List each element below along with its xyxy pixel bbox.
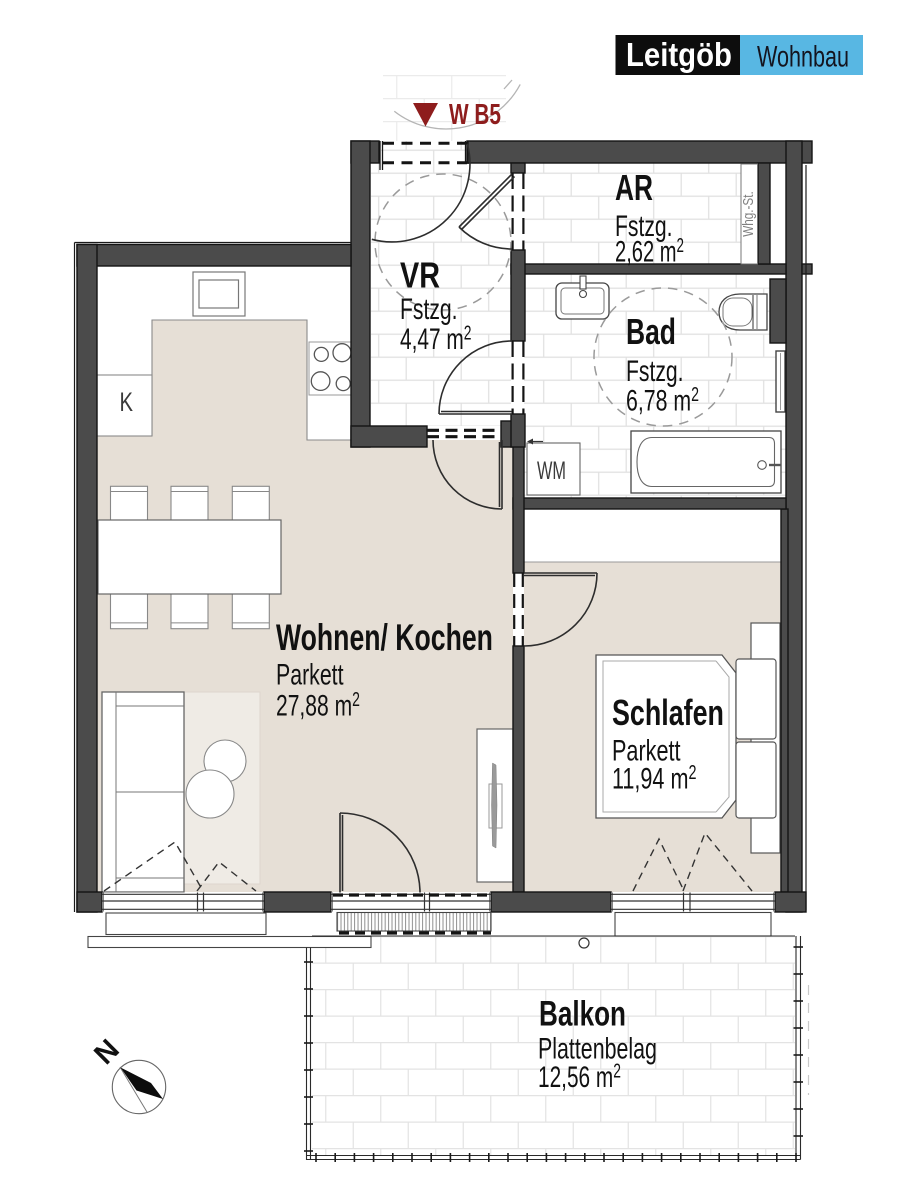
- svg-text:12,56 m2: 12,56 m2: [538, 1059, 621, 1094]
- svg-text:6,78 m2: 6,78 m2: [626, 383, 699, 418]
- svg-text:11,94 m2: 11,94 m2: [612, 761, 696, 796]
- svg-text:Leitgöb: Leitgöb: [626, 36, 732, 73]
- svg-text:K: K: [120, 387, 134, 418]
- svg-text:W B5: W B5: [449, 99, 501, 131]
- svg-text:Fstzg.: Fstzg.: [400, 294, 458, 326]
- svg-text:Whg.-St.: Whg.-St.: [740, 191, 757, 236]
- svg-text:Balkon: Balkon: [539, 994, 626, 1034]
- svg-text:VR: VR: [400, 254, 440, 295]
- svg-text:Plattenbelag: Plattenbelag: [538, 1031, 657, 1066]
- svg-text:Bad: Bad: [626, 311, 676, 352]
- svg-text:4,47 m2: 4,47 m2: [400, 321, 472, 356]
- svg-text:Parkett: Parkett: [276, 657, 344, 692]
- svg-text:Wohnbau: Wohnbau: [757, 39, 849, 73]
- svg-text:Schlafen: Schlafen: [612, 692, 724, 733]
- svg-text:AR: AR: [615, 167, 653, 208]
- svg-text:WM: WM: [537, 458, 566, 485]
- svg-text:Wohnen/ Kochen: Wohnen/ Kochen: [276, 617, 493, 659]
- svg-text:2,62 m2: 2,62 m2: [615, 234, 684, 268]
- svg-text:27,88 m2: 27,88 m2: [276, 687, 360, 722]
